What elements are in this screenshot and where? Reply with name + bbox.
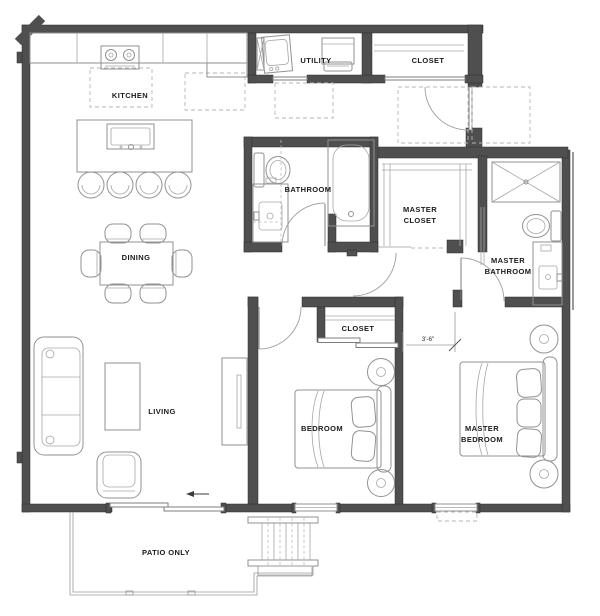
kitchen-label: KITCHEN <box>112 91 148 100</box>
dining-set <box>81 224 192 303</box>
dining-chairs <box>81 224 192 303</box>
stair-landing <box>258 566 313 575</box>
coffee-table <box>105 363 140 430</box>
bar-stools <box>78 172 191 198</box>
toilet <box>254 153 290 187</box>
bedroom-door <box>259 307 301 349</box>
patio-sliding-door <box>110 491 224 511</box>
patio-railing <box>73 512 312 592</box>
pillow <box>351 430 377 462</box>
doors <box>259 77 504 349</box>
utility-door <box>273 77 307 80</box>
slide-direction-arrow <box>186 491 194 497</box>
kitchen-area <box>30 33 247 198</box>
washer <box>261 35 292 73</box>
master-toilet <box>523 211 562 241</box>
counter-return <box>207 63 247 77</box>
entry-closet-rods <box>374 45 464 51</box>
pillow <box>351 396 377 428</box>
sofa <box>34 337 83 455</box>
dimension-annotation <box>403 312 461 352</box>
dining-table <box>100 242 173 285</box>
master-closet-label-line1: MASTER <box>403 205 437 214</box>
clearance-dimension-text: 3'-6" <box>422 336 435 343</box>
master-closet-door <box>353 247 447 296</box>
patio-label: PATIO ONLY <box>142 548 190 557</box>
headboard <box>377 386 391 472</box>
bathtub <box>328 140 374 226</box>
patio <box>70 512 318 595</box>
pillow <box>516 428 542 458</box>
range-cooktop <box>101 46 139 69</box>
master-bedroom-label-line1: MASTER <box>465 424 499 433</box>
kitchen-island <box>77 120 192 172</box>
master-bathroom-fixtures <box>481 162 562 305</box>
pillow <box>516 368 542 398</box>
armchair <box>97 452 141 498</box>
master-bedroom-label-line2: BEDROOM <box>461 435 503 444</box>
demising-wall-line <box>572 152 574 310</box>
utility-room <box>257 35 354 73</box>
pillow <box>517 399 541 427</box>
bedroom-label: BEDROOM <box>301 424 343 433</box>
master-bathroom-label-line2: BATHROOM <box>485 267 532 276</box>
bedroom-area <box>295 316 398 497</box>
shower <box>492 162 560 202</box>
master-bathroom-label-line1: MASTER <box>491 256 525 265</box>
closet-slider-panel <box>318 338 360 343</box>
tv-console <box>222 358 247 445</box>
master-closet-label-line2: CLOSET <box>404 216 437 225</box>
master-bedroom-area <box>460 325 558 488</box>
entry-closet-label: CLOSET <box>412 56 445 65</box>
stairs <box>248 517 318 575</box>
dryer-shelf <box>322 38 354 71</box>
floor-plan: KITCHEN UTILITY CLOSET BATHROOM MASTER C… <box>0 0 600 616</box>
living-set <box>34 337 247 498</box>
floor-plan-drawing: KITCHEN UTILITY CLOSET BATHROOM MASTER C… <box>0 0 600 616</box>
utility-label: UTILITY <box>300 56 331 65</box>
window-projection-dashed <box>437 512 477 521</box>
vanity-sink <box>253 178 288 242</box>
master-bed <box>460 357 557 461</box>
living-label: LIVING <box>148 407 175 416</box>
entry-door <box>425 87 472 130</box>
dining-label: DINING <box>122 253 151 262</box>
closet-slider-panel <box>356 343 398 348</box>
entry-closet-door <box>385 77 465 80</box>
tub-drain <box>349 212 354 217</box>
bedroom-closet-label: CLOSET <box>342 324 375 333</box>
bathroom-label: BATHROOM <box>285 185 332 194</box>
master-nightstands <box>530 325 558 488</box>
tv <box>237 375 241 428</box>
master-vanity-sink <box>533 242 562 305</box>
